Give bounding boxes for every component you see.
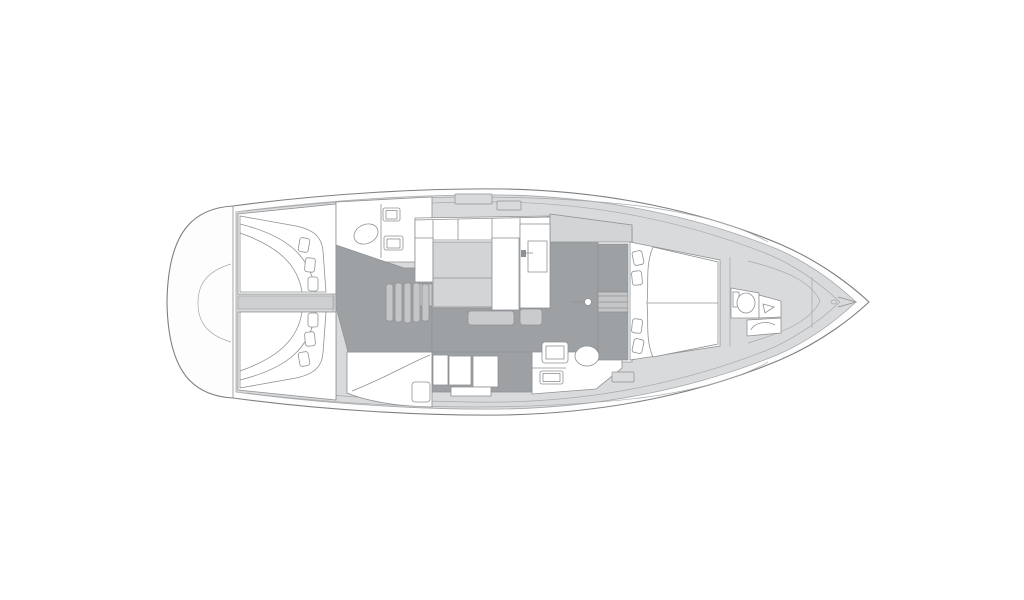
- nav-desk: [528, 241, 547, 272]
- salon-stool: [520, 309, 542, 325]
- port-wardrobe: [598, 244, 628, 292]
- starboard-settee: [492, 238, 519, 310]
- stair-tread: [422, 284, 429, 321]
- mast: [585, 299, 592, 306]
- forward-shower-room: [747, 318, 781, 336]
- galley-cabinet: [433, 355, 448, 385]
- nav-chair-icon: [521, 250, 526, 257]
- shower-bench: [540, 371, 563, 384]
- entrance-seat: [412, 382, 430, 402]
- toilet-icon: [737, 293, 755, 313]
- stair-tread: [413, 283, 420, 322]
- stair-tread: [386, 284, 393, 321]
- pillow: [308, 277, 318, 291]
- stair-tread: [404, 283, 411, 323]
- yacht-floorplan-diagram: [0, 0, 1024, 600]
- pillow: [631, 271, 642, 286]
- pillow: [304, 332, 315, 347]
- pillow: [298, 237, 310, 253]
- pillow: [308, 313, 318, 327]
- stair-tread: [395, 283, 402, 322]
- deck-hatch: [497, 201, 521, 210]
- galley-drawer: [451, 387, 491, 396]
- salon-table: [433, 242, 492, 307]
- port-settee: [415, 238, 433, 282]
- salon-stool: [468, 311, 514, 325]
- companionway-stairs: [386, 283, 429, 323]
- pillow: [631, 319, 642, 334]
- pillow: [298, 351, 310, 367]
- galley-appliance: [473, 356, 498, 387]
- engine-corridor: [238, 296, 334, 309]
- starboard-wardrobe: [598, 312, 628, 360]
- galley-appliance: [449, 356, 471, 385]
- toilet-icon: [575, 346, 599, 366]
- yacht-floorplan-canvas: [0, 0, 1024, 600]
- deck-hatch: [455, 194, 492, 204]
- pillow: [304, 258, 315, 273]
- deck-hatch: [612, 372, 634, 382]
- forward-berth: [647, 247, 718, 357]
